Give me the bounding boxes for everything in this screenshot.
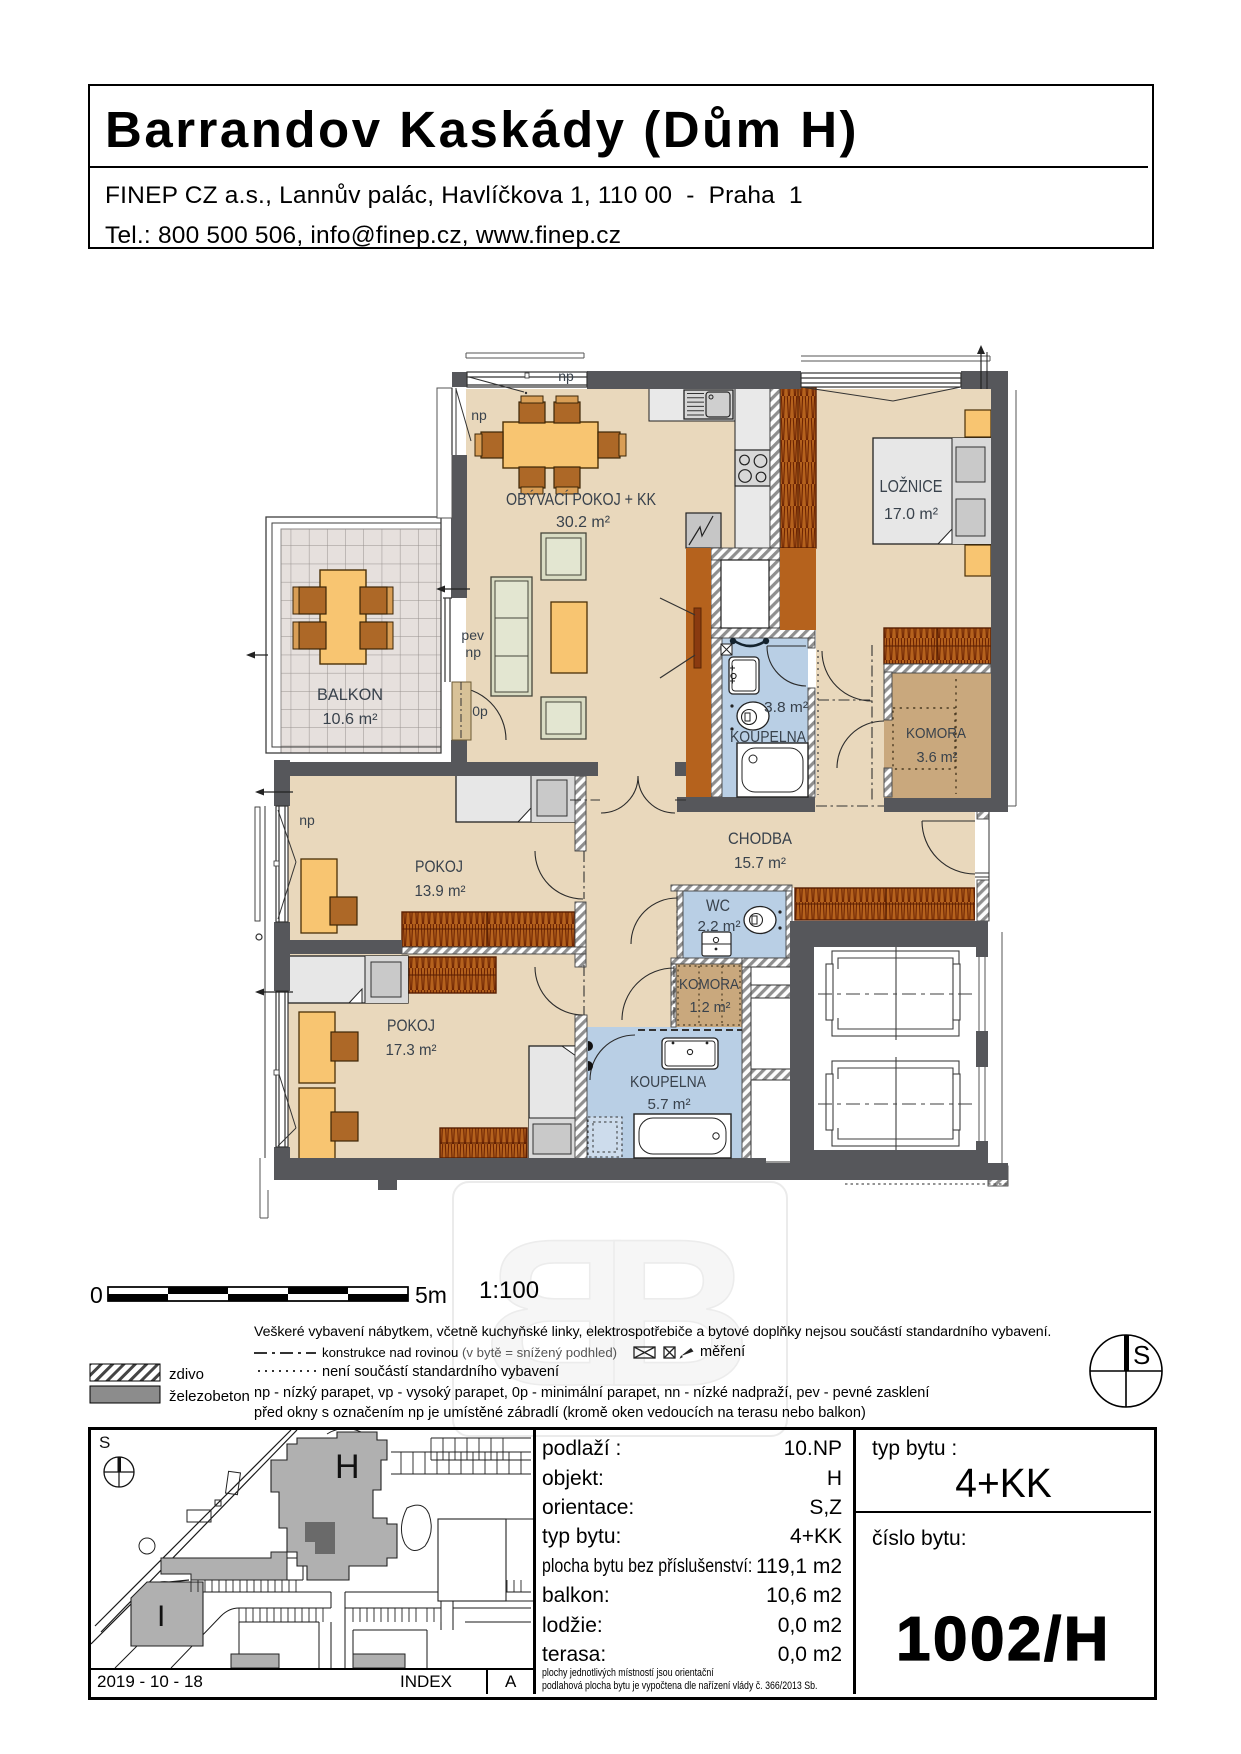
svg-text:2.2 m²: 2.2 m² (698, 918, 741, 935)
svg-text:KOMORA: KOMORA (906, 726, 966, 742)
svg-text:LOŽNICE: LOŽNICE (880, 476, 943, 496)
svg-text:POKOJ: POKOJ (387, 1016, 435, 1035)
svg-text:0: 0 (90, 1282, 103, 1308)
svg-text:S: S (99, 1433, 110, 1452)
svg-text:H: H (335, 1448, 360, 1486)
svg-text:BALKON: BALKON (317, 686, 383, 704)
svg-text:pev: pev (461, 627, 484, 643)
svg-text:WC: WC (706, 897, 730, 915)
svg-text:1.2 m²: 1.2 m² (690, 1000, 731, 1016)
svg-text:np: np (299, 812, 315, 828)
svg-text:17.3 m²: 17.3 m² (386, 1042, 437, 1059)
svg-text:I: I (157, 1600, 165, 1633)
svg-text:KOMORA: KOMORA (679, 977, 739, 993)
svg-text:15.7 m²: 15.7 m² (734, 855, 786, 872)
svg-text:np: np (465, 644, 481, 660)
svg-text:POKOJ: POKOJ (415, 857, 463, 876)
svg-text:KOUPELNA: KOUPELNA (630, 1074, 706, 1091)
svg-text:CHODBA: CHODBA (728, 829, 793, 848)
svg-text:13.9 m²: 13.9 m² (415, 883, 466, 900)
svg-text:30.2 m²: 30.2 m² (556, 514, 611, 531)
svg-text:5m: 5m (415, 1282, 447, 1308)
svg-text:KOUPELNA: KOUPELNA (730, 729, 806, 746)
svg-text:OBÝVACÍ POKOJ + KK: OBÝVACÍ POKOJ + KK (506, 489, 656, 509)
svg-text:10.6 m²: 10.6 m² (323, 711, 378, 728)
svg-text:17.0 m²: 17.0 m² (884, 506, 939, 523)
svg-text:np: np (471, 407, 487, 423)
svg-text:np: np (558, 368, 574, 384)
svg-text:5.7 m²: 5.7 m² (648, 1096, 691, 1113)
svg-text:3.6 m²: 3.6 m² (917, 750, 958, 766)
svg-text:3.8 m²: 3.8 m² (764, 699, 808, 716)
svg-text:0p: 0p (472, 703, 488, 719)
svg-text:S: S (1133, 1340, 1150, 1370)
